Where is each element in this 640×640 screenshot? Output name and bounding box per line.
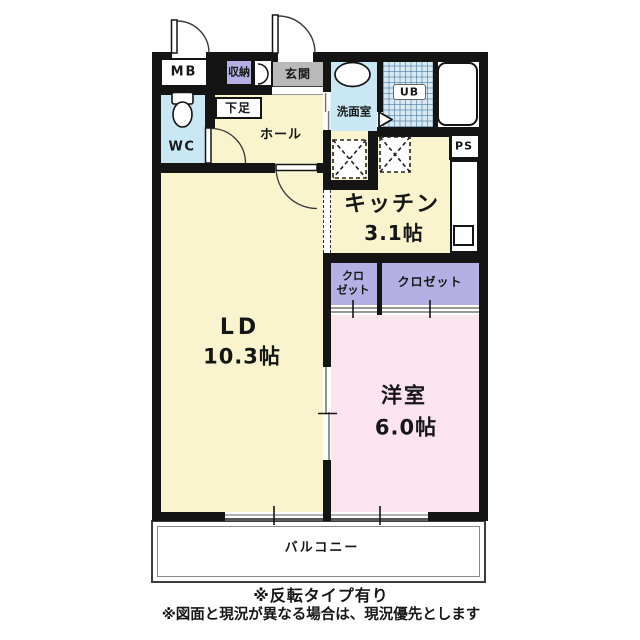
- label-pipe-space: PS: [455, 141, 473, 152]
- label-bedroom-name: 洋室: [381, 386, 427, 407]
- room-living-dining: [161, 173, 323, 512]
- door-leaf: [172, 20, 178, 53]
- label-hall: ホール: [260, 129, 302, 142]
- storage-door: [253, 59, 273, 87]
- label-living-name: LD: [220, 317, 260, 339]
- label-kitchen-size: 3.1帖: [364, 223, 423, 243]
- wall-segment: [323, 512, 331, 521]
- room-washroom: [330, 58, 377, 135]
- kitchen-open-boundary: [323, 190, 331, 253]
- entrance-door-arc: [278, 16, 315, 53]
- wall-segment: [207, 56, 225, 87]
- entrance-step: [272, 87, 323, 95]
- note-disclaimer: ※図面と現況が異なる場合は、現況優先とします: [162, 608, 481, 623]
- room-bedroom: [331, 315, 479, 512]
- wall-segment: [313, 52, 488, 62]
- wall-segment: [377, 58, 383, 112]
- wall-segment: [205, 90, 215, 128]
- wall-segment: [323, 460, 331, 512]
- wall-segment: [323, 253, 488, 263]
- wall-segment: [152, 163, 275, 173]
- label-wc: WC: [169, 141, 196, 154]
- entrance-door-leaf: [273, 15, 279, 53]
- wall-segment: [479, 52, 488, 521]
- wall-segment: [323, 263, 331, 367]
- label-closet-small-line2: ゼット: [337, 285, 370, 296]
- wall-segment: [377, 263, 382, 315]
- wall-segment: [152, 512, 225, 521]
- wall-segment: [323, 180, 368, 190]
- wall-segment: [428, 512, 488, 521]
- label-closet-small-line1: クロ: [342, 271, 364, 282]
- label-entrance: 玄関: [285, 68, 311, 80]
- door-arc: [177, 21, 209, 53]
- label-storage: 収納: [228, 67, 250, 78]
- label-kitchen-name: キッチン: [344, 194, 440, 216]
- wc-door-leaf: [206, 128, 212, 163]
- bathtub-icon: [437, 62, 478, 126]
- floorplan-canvas: MB 収納 玄関 下足 WC ホール 洗面室 UB PS キッチン 3.1帖 ク…: [0, 0, 640, 640]
- label-living-size: 10.3帖: [203, 347, 281, 368]
- wall-segment: [152, 52, 161, 521]
- wall-segment: [323, 52, 331, 92]
- label-unit-bath: UB: [400, 87, 419, 98]
- label-bedroom-size: 6.0帖: [375, 418, 437, 439]
- label-meter-box: MB: [171, 66, 198, 79]
- note-reverse-type: ※反転タイプ有り: [253, 588, 389, 604]
- label-closet-large: クロゼット: [397, 276, 462, 288]
- label-shoe-box: 下足: [225, 102, 251, 114]
- label-washroom: 洗面室: [337, 106, 372, 118]
- label-balcony: バルコニー: [285, 542, 360, 555]
- kitchen-sink: [453, 225, 474, 246]
- wall-segment: [368, 131, 378, 190]
